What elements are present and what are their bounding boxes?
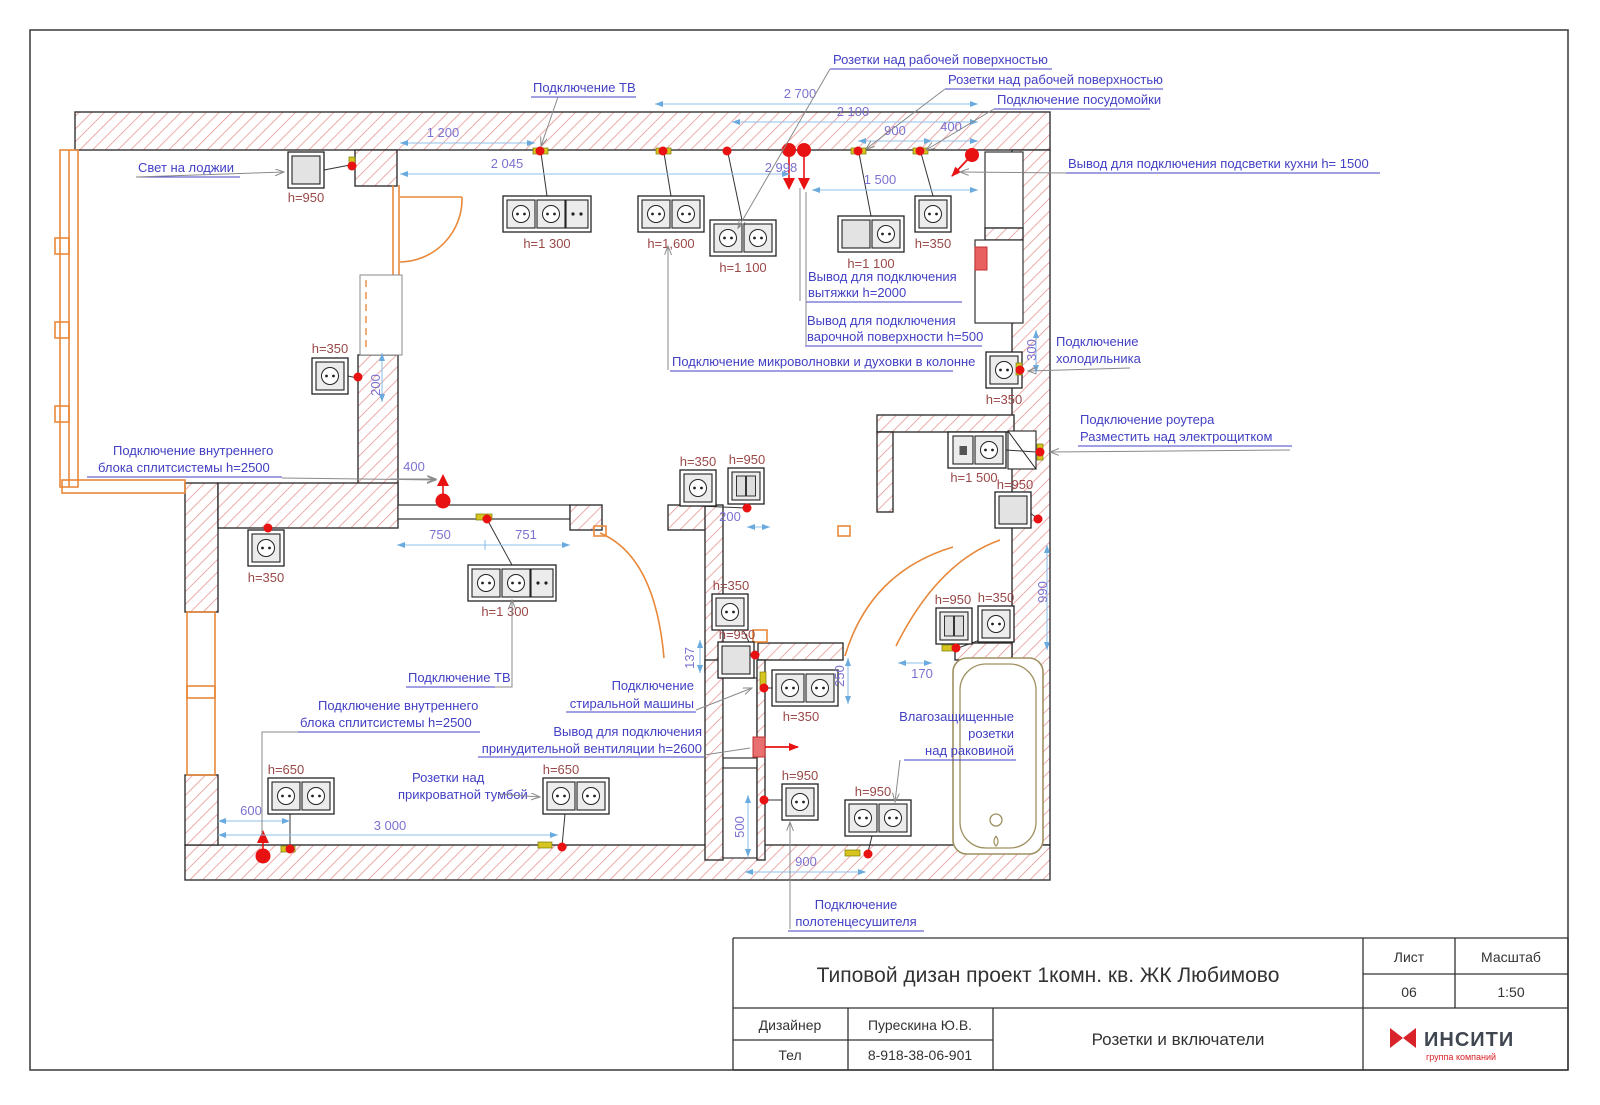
dimension-label: 2 045 <box>491 156 524 171</box>
dimension-label: 1 500 <box>864 172 897 187</box>
outlet-bedroom-left <box>248 530 284 566</box>
callout-label: принудительной вентиляции h=2600 <box>482 741 702 756</box>
callout-label: Подключение роутера <box>1080 412 1215 427</box>
outlet-dishwasher <box>915 196 951 232</box>
dimension-label: 1 200 <box>427 125 460 140</box>
height-label: h=950 <box>997 477 1034 492</box>
kitchen-cabinet-divider <box>985 228 1023 240</box>
outlet-hall <box>712 594 748 630</box>
height-label: h=1,600 <box>647 236 694 251</box>
callout-label: Розетки над рабочей поверхностью <box>833 52 1048 67</box>
height-label: h=650 <box>268 762 305 777</box>
floor-plan-drawing: 2 700 2 100 900 400 2 998 1 500 1 200 2 … <box>0 0 1600 1100</box>
wall <box>185 845 1050 880</box>
wall <box>668 505 707 530</box>
outlet-bedside-left <box>268 778 334 814</box>
height-label: h=950 <box>729 452 766 467</box>
height-label: h=350 <box>713 578 750 593</box>
drawing-name: Розетки и включатели <box>1092 1030 1265 1049</box>
outlet-worktop <box>710 220 776 256</box>
outlet-bedroom-tv <box>468 565 556 601</box>
height-label: h=950 <box>935 592 972 607</box>
dimension-label: 3 000 <box>374 818 407 833</box>
height-label: h=950 <box>782 768 819 783</box>
dimension-label: 750 <box>429 527 451 542</box>
floor-plan-sheet: 2 700 2 100 900 400 2 998 1 500 1 200 2 … <box>0 0 1600 1100</box>
phone-label: Тел <box>778 1047 801 1063</box>
dimension-label: 500 <box>732 816 747 838</box>
designer-label: Дизайнер <box>759 1017 822 1033</box>
dimension-label: 751 <box>515 527 537 542</box>
outlet-tv-kitchen <box>503 196 591 232</box>
dimension-label: 2 700 <box>784 86 817 101</box>
logo-subtext: группа компаний <box>1426 1052 1496 1062</box>
outlet-bathroom-entry <box>978 606 1014 642</box>
wall <box>758 643 843 660</box>
duct-shaft <box>723 678 757 758</box>
height-label: h=1 500 <box>950 470 997 485</box>
riser-marker <box>975 247 987 270</box>
switch-corridor <box>728 468 764 504</box>
outlet-corridor <box>680 470 716 506</box>
callout-label: Розетки над <box>412 770 485 785</box>
wall <box>705 660 723 860</box>
callout-label: Подключение микроволновки и духовки в ко… <box>672 354 975 369</box>
callout-label: Розетки над рабочей поверхностью <box>948 72 1163 87</box>
outlet-washing-machine <box>772 670 838 706</box>
height-label: h=350 <box>312 341 349 356</box>
switch-hall <box>995 492 1031 528</box>
dimension-label: 300 <box>1024 339 1039 361</box>
height-label: h=350 <box>986 392 1023 407</box>
height-label: h=950 <box>855 784 892 799</box>
designer-value: Пурескина Ю.В. <box>868 1017 972 1033</box>
height-label: h=350 <box>915 236 952 251</box>
height-label: h=350 <box>248 570 285 585</box>
outlet-bedside-right <box>543 778 609 814</box>
project-title: Типовой дизан проект 1комн. кв. ЖК Любим… <box>817 964 1280 987</box>
callout-label: Подключение <box>612 678 694 693</box>
height-label: h=1 100 <box>719 260 766 275</box>
callout-label: Подключение внутреннего <box>318 698 478 713</box>
wall <box>185 483 218 612</box>
vent-duct <box>753 737 765 757</box>
height-label: h=350 <box>783 709 820 724</box>
dimension-label: 400 <box>403 459 425 474</box>
callout-label: над раковиной <box>925 743 1014 758</box>
switch-bathroom <box>936 608 972 644</box>
dimension-label: 900 <box>795 854 817 869</box>
dimension-label: 400 <box>940 119 962 134</box>
wall <box>877 415 1014 432</box>
height-label: h=650 <box>543 762 580 777</box>
callout-label: Подключение <box>815 897 897 912</box>
scale-value: 1:50 <box>1497 984 1524 1000</box>
height-label: h=350 <box>680 454 717 469</box>
dimension-label: 250 <box>832 665 847 687</box>
sheet-label: Лист <box>1394 949 1425 965</box>
callout-label: Подключение посудомойки <box>997 92 1161 107</box>
dimension-label: 170 <box>911 666 933 681</box>
callout-label: блока сплитсистемы h=2500 <box>300 715 472 730</box>
outlet-kitchen-1600 <box>638 196 704 232</box>
callout-label: полотенцесушителя <box>795 914 916 929</box>
callout-label: Подключение ТВ <box>408 670 511 685</box>
callout-label: блока сплитсистемы h=2500 <box>98 460 270 475</box>
kitchen-cabinet <box>985 152 1023 228</box>
callout-label: Подключение <box>1056 334 1138 349</box>
switch-hall-2 <box>718 642 754 678</box>
dimension-label: 200 <box>719 509 741 524</box>
sheet-value: 06 <box>1401 984 1417 1000</box>
dimension-label: 900 <box>884 123 906 138</box>
callout-label: Подключение внутреннего <box>113 443 273 458</box>
callout-label: Вывод для подключения подсветки кухни h=… <box>1068 156 1369 171</box>
height-label: h=950 <box>288 190 325 205</box>
callout-label: Вывод для подключения <box>808 269 957 284</box>
wall <box>218 483 398 528</box>
dimension-label: 137 <box>682 647 697 669</box>
callout-label: Подключение ТВ <box>533 80 636 95</box>
wall <box>877 432 893 512</box>
logo-text: ИНСИТИ <box>1424 1029 1514 1051</box>
callout-label: розетки <box>968 726 1014 741</box>
outlet-towel-rail <box>782 784 818 820</box>
outlet-above-sink <box>845 800 911 836</box>
dimension-label: 990 <box>1035 581 1050 603</box>
height-label: h=950 <box>719 627 756 642</box>
switch-loggia-light <box>288 152 324 188</box>
wall <box>185 775 218 845</box>
height-label: h=1 300 <box>481 604 528 619</box>
height-label: h=1 300 <box>523 236 570 251</box>
dimension-label: 2 100 <box>837 104 870 119</box>
duct-shaft <box>723 768 757 858</box>
callout-label: стиральной машины <box>570 696 694 711</box>
callout-label: Разместить над электрощитком <box>1080 429 1272 444</box>
dimension-label: 600 <box>240 803 262 818</box>
callout-label: варочной поверхности h=500 <box>807 329 983 344</box>
scale-label: Масштаб <box>1481 949 1541 965</box>
outlet-router <box>948 432 1006 468</box>
outlet-oven <box>838 216 904 252</box>
callout-label: Влагозащищенные <box>899 709 1014 724</box>
height-label: h=350 <box>978 590 1015 605</box>
wall <box>355 150 397 186</box>
callout-label: Вывод для подключения <box>553 724 702 739</box>
callout-label: Вывод для подключения <box>807 313 956 328</box>
outlet-loggia <box>312 358 348 394</box>
callout-label: Свет на лоджии <box>138 160 234 175</box>
callout-label: вытяжки h=2000 <box>808 285 906 300</box>
dimension-label: 200 <box>368 374 383 396</box>
phone-value: 8-918-38-06-901 <box>868 1047 973 1063</box>
callout-label: холодильника <box>1056 351 1142 366</box>
